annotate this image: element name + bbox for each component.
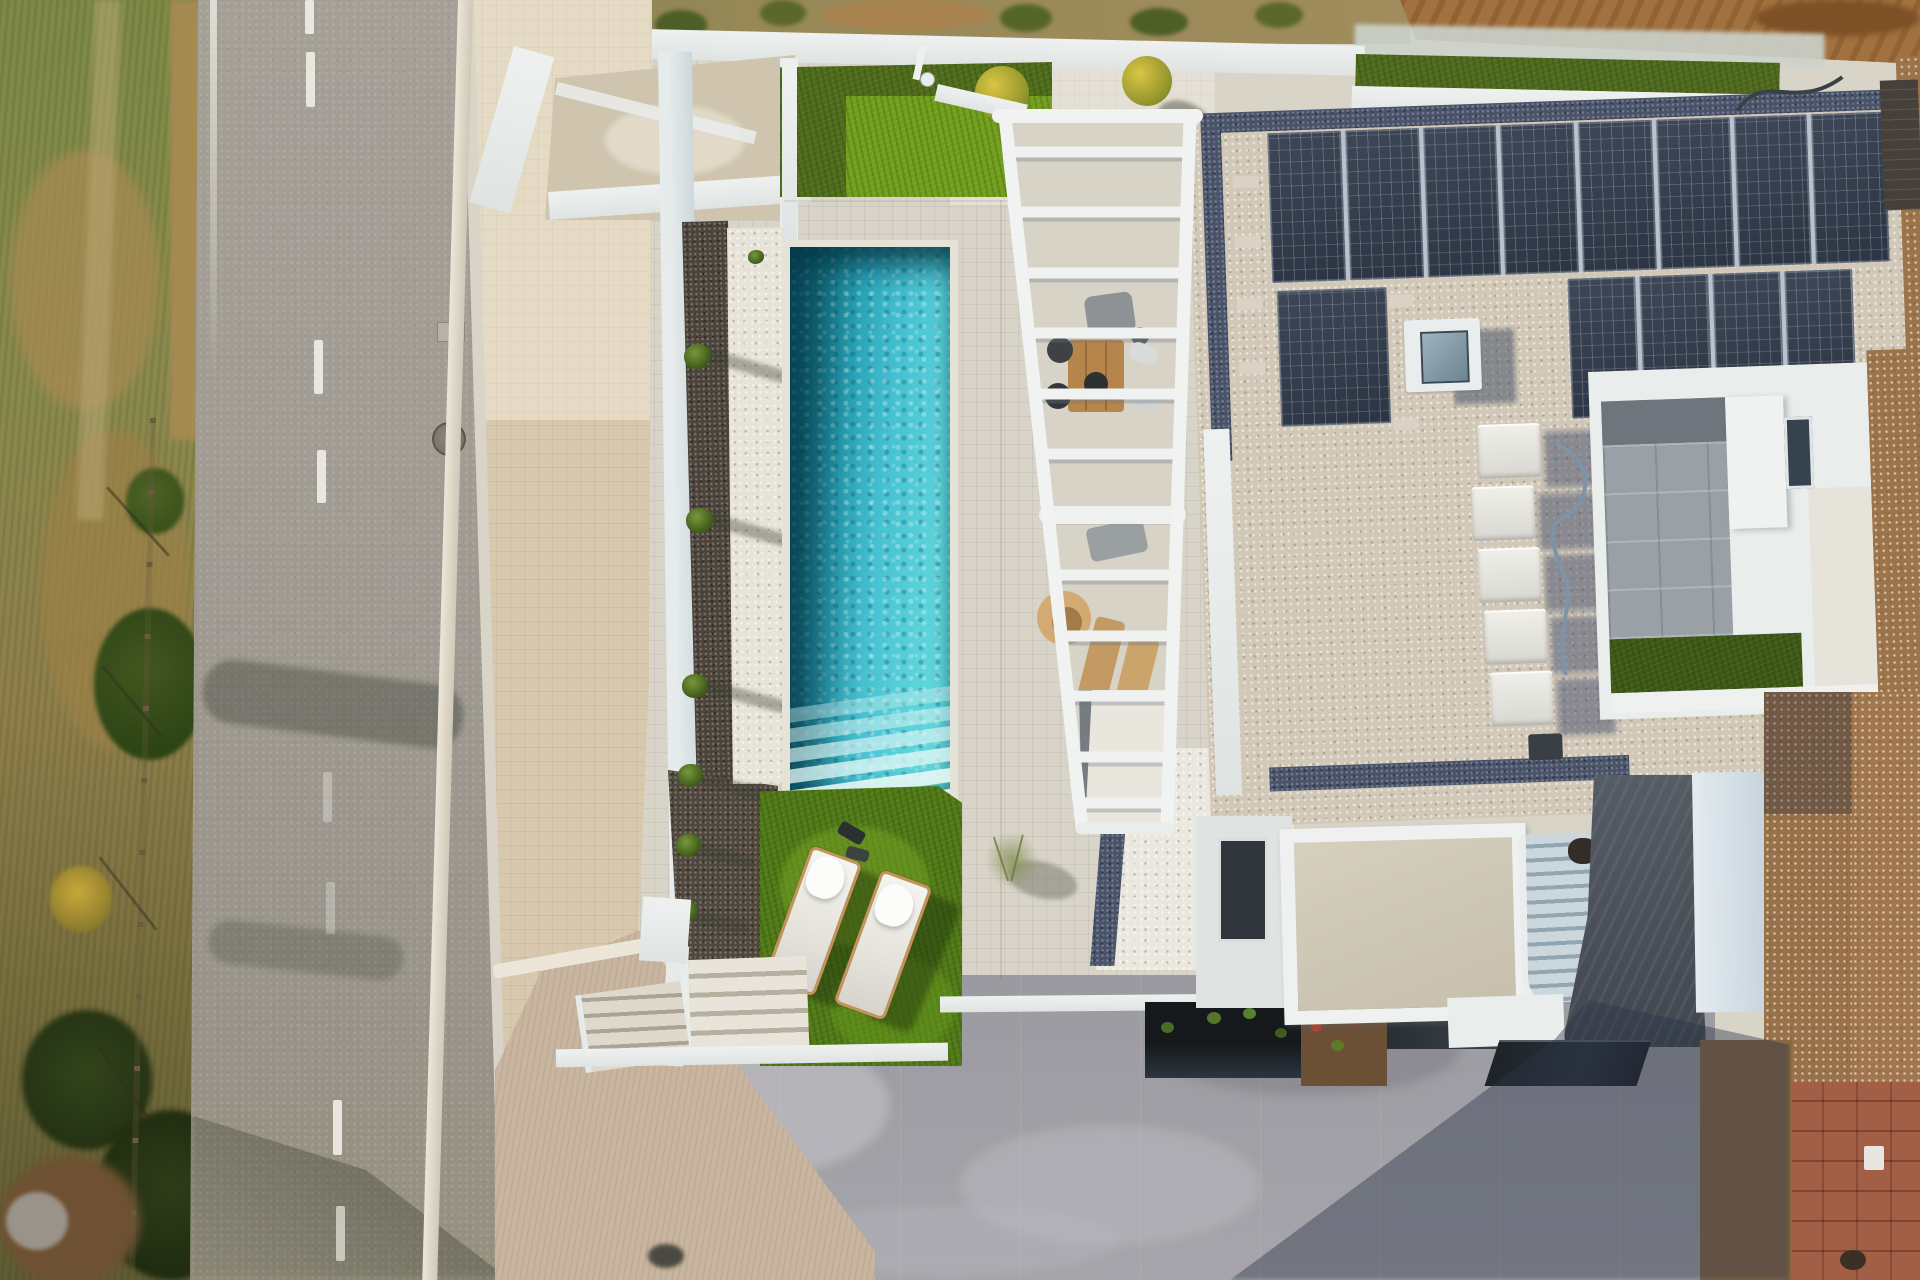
- ac-unit-2: [1471, 485, 1535, 541]
- roof-top-cable: [1730, 62, 1862, 119]
- center-line-dash-6: [326, 882, 335, 934]
- bed-plant-3: [1243, 1008, 1256, 1019]
- mount-foot-4: [1239, 361, 1265, 374]
- solar-panel: [1655, 117, 1734, 269]
- hillside-bush-4: [1000, 4, 1052, 32]
- courtyard-stairwell-shadow: [1601, 397, 1726, 445]
- solar-panel: [1578, 120, 1657, 272]
- road-edge-line: [210, 0, 217, 380]
- hillside-dirt-patch: [820, 0, 990, 30]
- ramp-drain-blob: [648, 1244, 684, 1268]
- lawn-west-wall-cap: [782, 60, 797, 252]
- pool: [790, 247, 950, 792]
- outdoor-shower-head: [920, 72, 935, 87]
- paver-white-object: [1864, 1146, 1884, 1170]
- hillside-bush-3: [760, 0, 806, 26]
- flowerbed-dark: [1145, 1002, 1301, 1078]
- wall-end-cap: [639, 896, 691, 963]
- mount-foot-5: [1389, 294, 1413, 307]
- roof-top-cable-path: [1736, 77, 1843, 111]
- mount-foot-2: [1235, 235, 1261, 248]
- bed-plant-5: [1331, 1040, 1344, 1051]
- ac-cable-path: [1549, 442, 1592, 675]
- lower-roof: [1279, 823, 1530, 1025]
- neighbor-solar-panel: [1880, 79, 1920, 210]
- solar-panel: [1422, 125, 1501, 277]
- solar-panel-row2-left: [1276, 287, 1391, 427]
- solar-panel: [1811, 112, 1890, 264]
- solar-panel: [1267, 131, 1346, 283]
- center-line-dash-8: [336, 1206, 345, 1261]
- mount-foot-3: [1237, 297, 1263, 310]
- solar-panel: [1733, 114, 1812, 266]
- courtyard-window: [1784, 416, 1814, 489]
- mount-foot-1: [1232, 175, 1258, 188]
- skylight-glass: [1420, 330, 1470, 384]
- center-line-dash-7: [333, 1100, 342, 1155]
- walkway-east-wall: [1692, 771, 1770, 1012]
- pergola: [968, 98, 1220, 842]
- courtyard-grass: [1609, 633, 1803, 694]
- bare-earth-dark-corner: [1755, 0, 1920, 36]
- hillside-bush-5: [1130, 8, 1188, 36]
- center-line-dash-3: [314, 340, 323, 394]
- center-line-dash-4: [317, 450, 326, 503]
- paver-strip: [1788, 1082, 1920, 1280]
- center-line-dash-5: [323, 772, 332, 822]
- lounger-towel-2: [870, 880, 919, 932]
- roof-junction-box: [1528, 733, 1563, 760]
- lounger-towel-1: [801, 852, 850, 904]
- solar-panel: [1500, 122, 1579, 274]
- bed-plant-4: [1275, 1028, 1287, 1038]
- skylight: [1404, 318, 1482, 393]
- center-line-dash-1: [305, 0, 314, 34]
- verge-tree-small: [126, 468, 184, 534]
- center-line-dash-2: [306, 52, 315, 107]
- aerial-photo-scene: [0, 0, 1920, 1280]
- mount-foot-6: [1393, 418, 1417, 431]
- courtyard-inner-wall: [1725, 395, 1788, 529]
- hillside-bush-6: [1255, 2, 1303, 28]
- courtyard: [1588, 362, 1900, 720]
- solar-array-row-1: [1267, 112, 1890, 283]
- side-window: [1218, 838, 1268, 942]
- bed-plant-1: [1161, 1022, 1174, 1033]
- bed-plant-2: [1207, 1012, 1221, 1024]
- solar-panel: [1345, 128, 1424, 280]
- paver-dark-spot: [1840, 1250, 1866, 1270]
- verge-rubble: [6, 1192, 68, 1250]
- yellow-bush: [50, 866, 112, 932]
